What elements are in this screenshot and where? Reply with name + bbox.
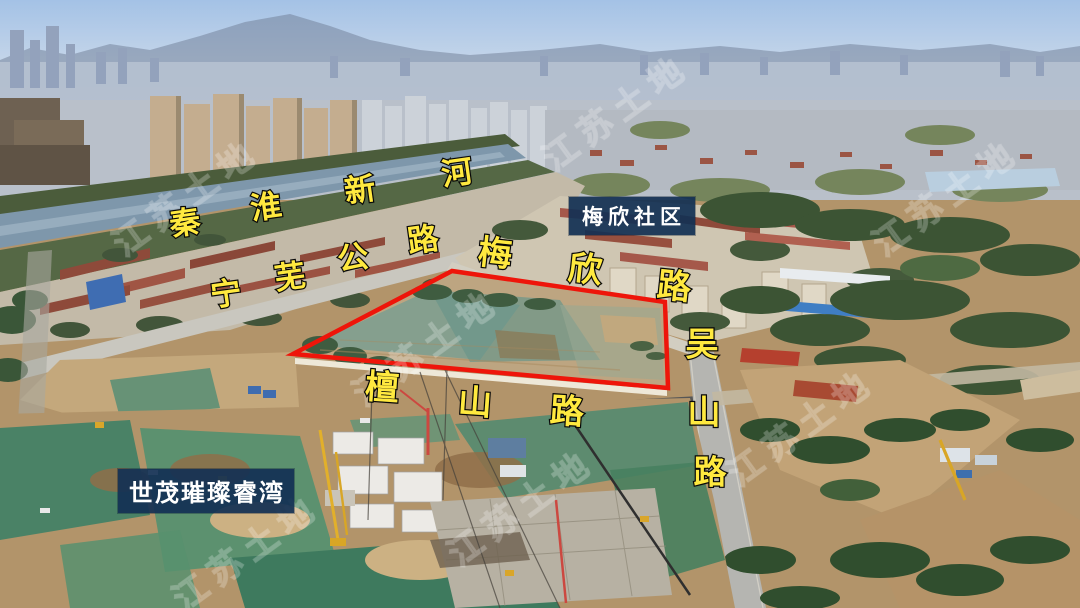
label-char: 梅 bbox=[476, 235, 513, 272]
sky bbox=[0, 0, 1080, 110]
label-char: 吴 bbox=[686, 328, 719, 361]
label-char: 新 bbox=[342, 172, 377, 207]
label-char: 路 bbox=[405, 222, 440, 257]
label-char: 山 bbox=[688, 396, 721, 429]
label-char: 河 bbox=[439, 155, 474, 190]
label-char: 秦 bbox=[167, 205, 202, 240]
meixin-community-label: 梅欣社区 bbox=[569, 197, 695, 235]
label-char: 公 bbox=[335, 240, 370, 275]
aerial-photo: 江苏土地 江苏土地 江苏土地 江苏土地 江苏土地 江苏土地 江苏土地 秦 淮 新… bbox=[0, 0, 1080, 608]
label-char: 芜 bbox=[272, 259, 307, 294]
aerial-photo-background bbox=[0, 0, 1080, 608]
label-char: 檀 bbox=[364, 370, 400, 406]
label-char: 淮 bbox=[248, 189, 283, 224]
shimao-project-label: 世茂璀璨睿湾 bbox=[118, 469, 294, 513]
label-char: 欣 bbox=[566, 251, 603, 288]
label-char: 宁 bbox=[208, 276, 243, 311]
label-char: 路 bbox=[694, 456, 727, 489]
label-char: 路 bbox=[549, 394, 585, 430]
label-char: 路 bbox=[655, 268, 692, 305]
label-char: 山 bbox=[457, 385, 493, 421]
east-side bbox=[724, 348, 1080, 608]
